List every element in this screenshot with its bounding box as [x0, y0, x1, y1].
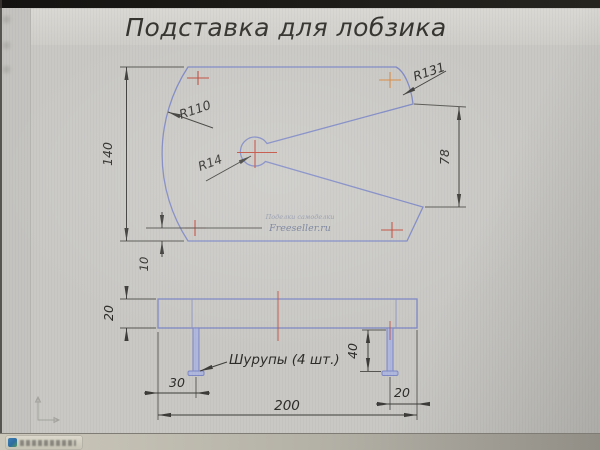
watermark-site: Freeseller.ru — [268, 223, 331, 234]
photo-vignette — [0, 0, 600, 450]
dim-label-40: 40 — [345, 343, 360, 359]
toolbar-icon-ghost — [3, 66, 10, 73]
dim-200: 200 — [158, 330, 417, 420]
center-mark-bottom-right — [381, 222, 403, 238]
radius-r110: R110 — [168, 97, 213, 128]
side-view: 20 40 30 200 — [101, 288, 429, 420]
photo-top-edge — [0, 0, 600, 8]
dim-78: 78 — [414, 104, 466, 207]
dim-label-78: 78 — [437, 149, 452, 165]
dim-label-10: 10 — [137, 257, 151, 272]
taskbar-button-text-blur — [20, 440, 76, 446]
toolbar-icon-ghost — [3, 16, 10, 23]
watermark-slogan: Поделки самоделки — [265, 213, 335, 221]
dim-label-20-thickness: 20 — [101, 305, 116, 321]
radius-label-r110: R110 — [177, 97, 213, 122]
screw-left — [188, 328, 204, 376]
dim-label-200: 200 — [274, 398, 300, 414]
screws-note: Шурупы (4 шт.) — [200, 352, 340, 371]
dim-20-thickness: 20 — [101, 288, 156, 339]
taskbar — [0, 433, 600, 450]
screen-photo: Подставка для лобзика 140 — [0, 0, 600, 450]
origin-marker-icon — [36, 397, 60, 423]
dim-140: 140 — [100, 67, 184, 241]
leader-r14 — [206, 156, 251, 181]
dim-40: 40 — [345, 330, 386, 372]
cad-drawing: Подставка для лобзика 140 — [0, 0, 600, 450]
dim-20-right: 20 — [376, 377, 429, 410]
cad-left-toolbar-ghost — [0, 8, 31, 436]
leader-r131 — [403, 71, 446, 95]
radius-r131: R131 — [403, 59, 447, 95]
taskbar-button[interactable] — [6, 436, 82, 449]
side-view-projection-lines — [192, 299, 396, 328]
photo-left-edge — [0, 0, 2, 450]
dim-label-140: 140 — [100, 142, 115, 166]
watermark: Поделки самоделки Freeseller.ru — [265, 213, 335, 234]
center-mark-top-left — [187, 71, 209, 85]
sheet-highlight-band — [0, 9, 600, 45]
screws-note-label: Шурупы (4 шт.) — [229, 352, 340, 368]
side-view-plate — [158, 299, 417, 328]
top-view: 140 10 78 R110 R1 — [100, 59, 466, 271]
dim-30: 30 — [144, 332, 210, 420]
top-view-outline — [162, 67, 423, 241]
center-mark-top-right — [379, 72, 401, 88]
dim-10: 10 — [137, 212, 262, 271]
radius-r14: R14 — [196, 151, 251, 181]
center-mark-bottom-left — [185, 220, 206, 236]
screen-moire-texture — [0, 0, 600, 450]
dim-label-20-right: 20 — [394, 385, 410, 400]
dim-label-30: 30 — [169, 375, 185, 390]
center-mark-notch — [237, 140, 277, 168]
app-icon — [8, 438, 17, 447]
leader-screws — [200, 362, 227, 371]
radius-label-r14: R14 — [196, 151, 224, 174]
radius-label-r131: R131 — [411, 59, 447, 84]
screw-right — [382, 321, 398, 376]
leader-r110 — [168, 112, 213, 128]
toolbar-icon-ghost — [3, 42, 10, 49]
